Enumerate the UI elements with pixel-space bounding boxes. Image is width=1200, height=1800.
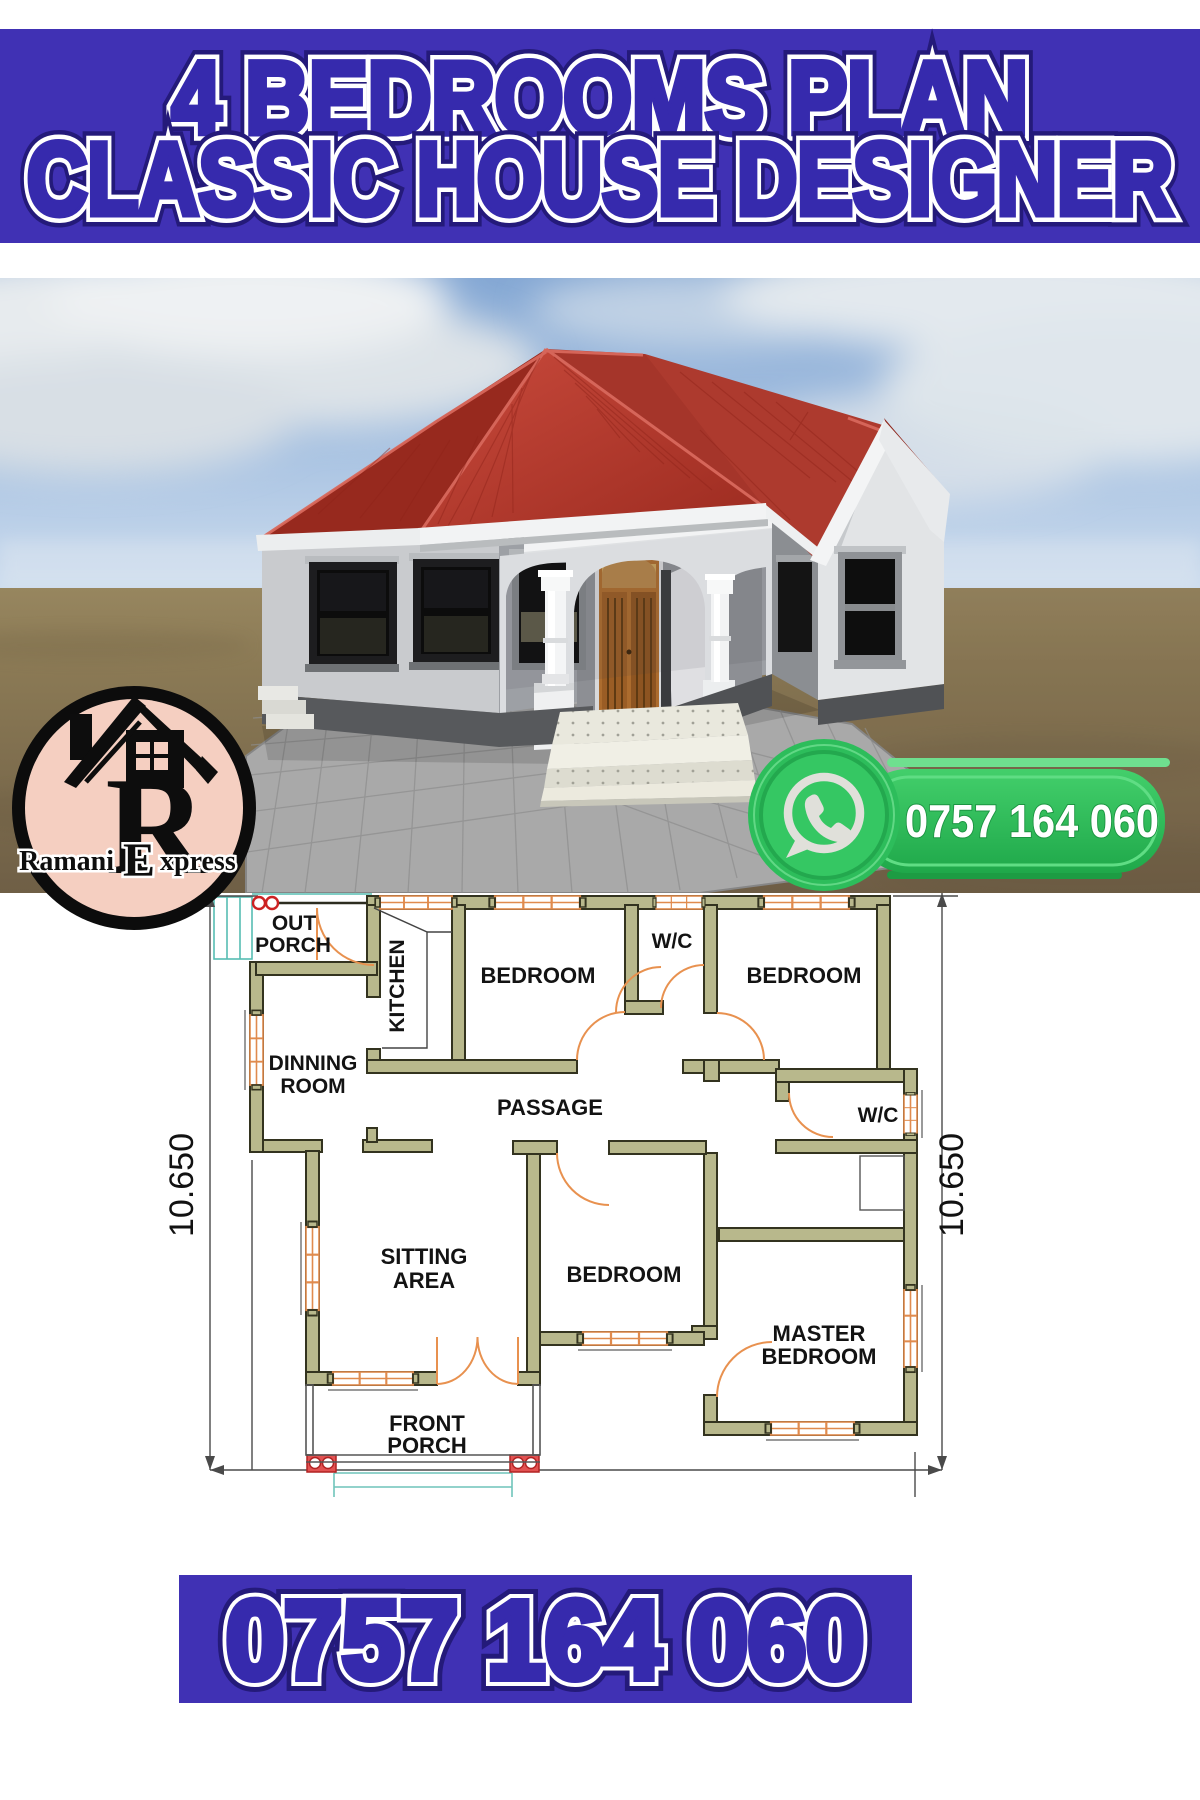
svg-text:MASTER: MASTER bbox=[773, 1321, 866, 1346]
svg-text:0757 164 060: 0757 164 060 bbox=[905, 795, 1159, 847]
svg-text:CLASSIC HOUSE DESIGNER: CLASSIC HOUSE DESIGNER bbox=[27, 122, 1173, 236]
svg-text:PORCH: PORCH bbox=[387, 1433, 466, 1458]
svg-text:W/C: W/C bbox=[652, 930, 693, 953]
svg-text:KITCHEN: KITCHEN bbox=[386, 939, 409, 1032]
svg-text:BEDROOM: BEDROOM bbox=[762, 1344, 877, 1369]
svg-text:AREA: AREA bbox=[393, 1268, 455, 1293]
svg-text:PORCH: PORCH bbox=[255, 934, 331, 957]
svg-text:W/C: W/C bbox=[858, 1104, 899, 1127]
svg-text:PASSAGE: PASSAGE bbox=[497, 1095, 603, 1120]
svg-text:ROOM: ROOM bbox=[280, 1075, 345, 1098]
svg-text:Ramani: Ramani bbox=[19, 846, 114, 877]
svg-text:0757 164 060: 0757 164 060 bbox=[226, 1579, 864, 1702]
svg-text:xpress: xpress bbox=[160, 846, 236, 877]
svg-text:SITTING: SITTING bbox=[381, 1244, 468, 1269]
svg-text:DINNING: DINNING bbox=[269, 1052, 358, 1075]
svg-text:OUT: OUT bbox=[272, 912, 317, 935]
svg-text:E: E bbox=[123, 834, 155, 887]
svg-text:BEDROOM: BEDROOM bbox=[747, 963, 862, 988]
svg-text:BEDROOM: BEDROOM bbox=[567, 1262, 682, 1287]
svg-text:BEDROOM: BEDROOM bbox=[481, 963, 596, 988]
svg-text:10.650: 10.650 bbox=[933, 1133, 971, 1237]
svg-text:10.650: 10.650 bbox=[163, 1133, 201, 1237]
